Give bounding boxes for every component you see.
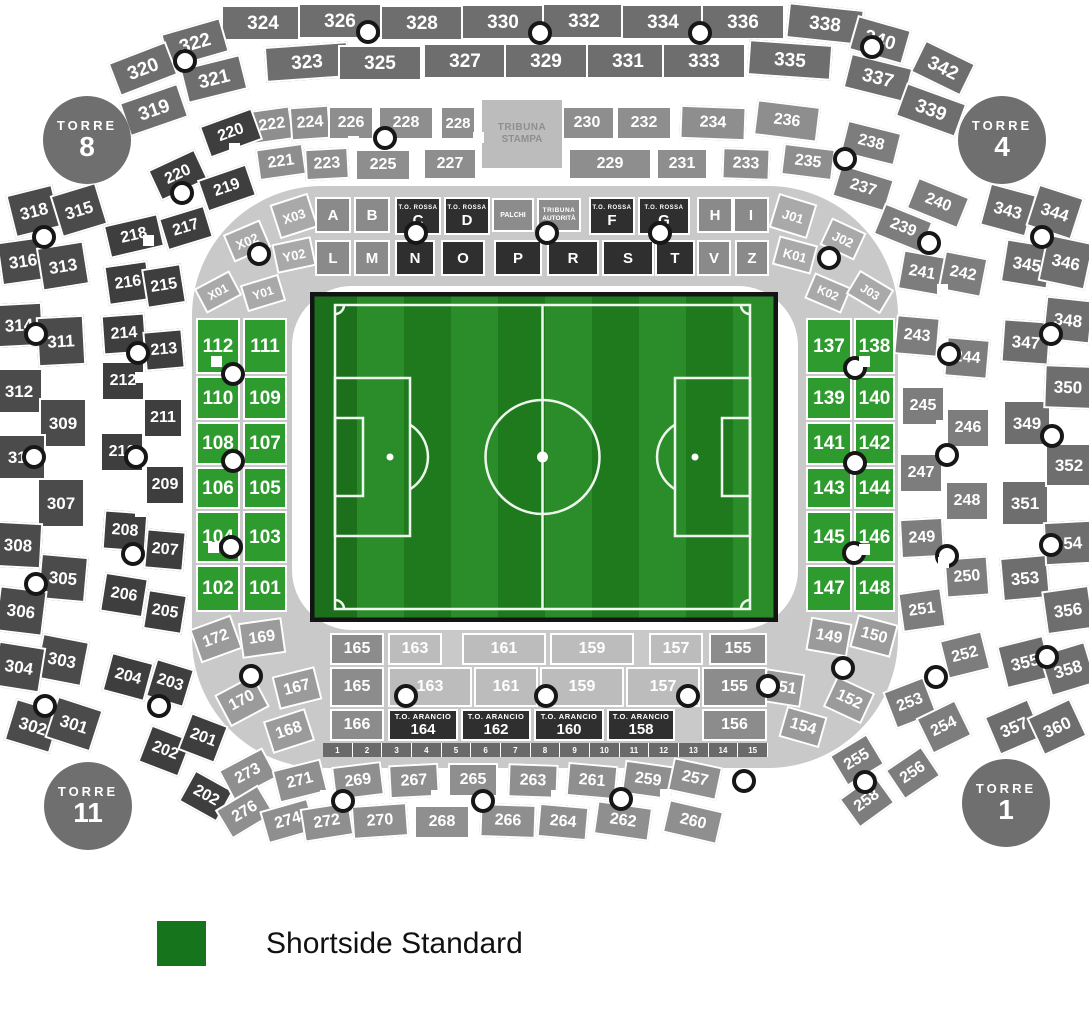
section-165[interactable]: 165 [330,667,384,707]
section-228[interactable]: 228 [440,106,476,140]
row-number-5: 5 [442,743,472,757]
gate-notch [937,284,948,295]
view-marker[interactable] [860,35,884,59]
section-225[interactable]: 225 [355,149,411,181]
section-235[interactable]: 235 [780,143,836,181]
section-169[interactable]: 169 [238,617,287,659]
section-230[interactable]: 230 [559,106,615,140]
gate-notch [936,420,947,431]
view-marker[interactable] [817,246,841,270]
gate-notch [135,372,146,383]
section-327[interactable]: 327 [423,43,507,79]
section-207[interactable]: 207 [143,528,186,571]
section-332[interactable]: 332 [542,3,626,39]
row-number-4: 4 [412,743,442,757]
tower-4: TORRE4 [958,96,1046,184]
section-102[interactable]: 102 [196,565,240,612]
section-229[interactable]: 229 [568,148,652,180]
section-209[interactable]: 209 [145,465,185,505]
section-224[interactable]: 224 [289,105,331,142]
row-number-1: 1 [323,743,353,757]
section-158[interactable]: T.O. ARANCIO158 [607,709,675,741]
section-211[interactable]: 211 [143,398,183,438]
section-111[interactable]: 111 [243,318,287,374]
section-H[interactable]: H [697,197,733,233]
section-155[interactable]: 155 [709,633,767,665]
section-P[interactable]: P [494,240,542,276]
view-marker[interactable] [471,789,495,813]
view-marker[interactable] [648,221,672,245]
tower-1: TORRE1 [962,759,1050,847]
section-312[interactable]: 312 [0,368,43,414]
tower-8: TORRE8 [43,96,131,184]
view-marker[interactable] [917,231,941,255]
section-D[interactable]: T.O. ROSSAD [444,197,490,235]
section-335[interactable]: 335 [747,39,833,81]
section-243[interactable]: 243 [893,314,940,358]
section-143[interactable]: 143 [806,467,852,509]
section-V[interactable]: V [697,240,731,276]
view-marker[interactable] [221,362,245,386]
section-F[interactable]: T.O. ROSSAF [589,197,635,235]
section-161[interactable]: 161 [462,633,546,665]
section-231[interactable]: 231 [656,148,708,180]
view-marker[interactable] [24,572,48,596]
section-227[interactable]: 227 [423,148,477,180]
row-number-12: 12 [649,743,679,757]
section-324[interactable]: 324 [221,5,305,41]
section-260[interactable]: 260 [662,799,724,845]
view-marker[interactable] [732,769,756,793]
section-215[interactable]: 215 [141,263,187,309]
section-B[interactable]: B [354,197,390,233]
row-number-15: 15 [738,743,768,757]
section-A[interactable]: A [315,197,351,233]
section-350[interactable]: 350 [1043,364,1089,410]
section-103[interactable]: 103 [243,511,287,563]
tower-11: TORRE11 [44,762,132,850]
section-331[interactable]: 331 [586,43,670,79]
section-219[interactable]: 219 [197,163,257,212]
section-206[interactable]: 206 [99,572,149,618]
view-marker[interactable] [239,664,263,688]
view-marker[interactable] [1030,225,1054,249]
legend-label: Shortside Standard [266,927,523,961]
row-number-8: 8 [531,743,561,757]
football-pitch [310,292,778,622]
section-N[interactable]: N [395,240,435,276]
gate-notch [859,544,870,555]
gate-notch [211,356,222,367]
section-148[interactable]: 148 [854,565,895,612]
section-161[interactable]: 161 [474,667,538,707]
view-marker[interactable] [404,221,428,245]
view-marker[interactable] [676,684,700,708]
section-333[interactable]: 333 [662,43,746,79]
section-M[interactable]: M [354,240,390,276]
view-marker[interactable] [833,147,857,171]
gate-notch [229,143,240,154]
view-marker[interactable] [22,445,46,469]
row-number-6: 6 [471,743,501,757]
section-232[interactable]: 232 [616,106,672,140]
section-308[interactable]: 308 [0,521,43,569]
section-304[interactable]: 304 [0,641,46,694]
section-STAMPA[interactable]: TRIBUNASTAMPA [480,98,564,170]
section-360[interactable]: 360 [1026,698,1087,756]
section-223[interactable]: 223 [304,147,350,181]
view-marker[interactable] [528,21,552,45]
gate-notch [348,136,359,147]
view-marker[interactable] [121,542,145,566]
gate-notch [135,506,146,517]
gate-notch [143,235,154,246]
section-248[interactable]: 248 [945,481,989,521]
section-165[interactable]: 165 [330,633,384,665]
section-205[interactable]: 205 [142,589,188,635]
section-163[interactable]: 163 [388,633,442,665]
section-264[interactable]: 264 [537,803,590,841]
section-352[interactable]: 352 [1045,443,1089,487]
view-marker[interactable] [126,341,150,365]
section-351[interactable]: 351 [1001,480,1049,526]
section-315[interactable]: 315 [50,182,109,238]
row-number-7: 7 [501,743,531,757]
section-251[interactable]: 251 [897,587,946,633]
view-marker[interactable] [535,221,559,245]
section-233[interactable]: 233 [721,147,770,181]
section-356[interactable]: 356 [1041,585,1089,635]
view-marker[interactable] [609,787,633,811]
section-S[interactable]: S [602,240,654,276]
view-marker[interactable] [373,126,397,150]
legend: Shortside Standard [157,921,523,966]
section-109[interactable]: 109 [243,376,287,420]
section-106[interactable]: 106 [196,467,240,509]
view-marker[interactable] [173,49,197,73]
section-R[interactable]: R [547,240,599,276]
section-221[interactable]: 221 [255,143,307,181]
view-marker[interactable] [688,21,712,45]
section-T[interactable]: T [655,240,695,276]
section-105[interactable]: 105 [243,467,287,509]
section-164[interactable]: T.O. ARANCIO164 [388,709,458,741]
stadium-seating-map: 3243263283303323343363383403423223203213… [0,0,1089,1032]
section-140[interactable]: 140 [854,376,895,420]
section-336[interactable]: 336 [701,4,785,40]
section-329[interactable]: 329 [504,43,588,79]
section-149[interactable]: 149 [805,617,852,658]
view-marker[interactable] [924,665,948,689]
section-147[interactable]: 147 [806,565,852,612]
view-marker[interactable] [170,181,194,205]
view-marker[interactable] [247,242,271,266]
section-159[interactable]: 159 [550,633,634,665]
section-I[interactable]: I [733,197,769,233]
gate-notch [473,132,484,143]
gate-notch [744,132,755,143]
gate-notch [431,790,442,801]
section-O[interactable]: O [441,240,485,276]
view-marker[interactable] [935,443,959,467]
view-marker[interactable] [1039,322,1063,346]
view-marker[interactable] [534,684,558,708]
view-marker[interactable] [1035,645,1059,669]
section-246[interactable]: 246 [946,408,990,448]
row-number-9: 9 [560,743,590,757]
section-166[interactable]: 166 [330,709,384,741]
view-marker[interactable] [1039,533,1063,557]
view-marker[interactable] [124,445,148,469]
gate-notch [859,356,870,367]
section-307[interactable]: 307 [37,478,85,528]
view-marker[interactable] [24,322,48,346]
legend-swatch-shortside-standard [157,921,206,966]
section-157[interactable]: 157 [649,633,703,665]
view-marker[interactable] [394,684,418,708]
row-number-10: 10 [590,743,620,757]
section-160[interactable]: T.O. ARANCIO160 [534,709,604,741]
view-marker[interactable] [356,20,380,44]
gate-notch [320,790,331,801]
section-PALCHI[interactable]: PALCHI [492,198,534,232]
view-marker[interactable] [33,694,57,718]
view-marker[interactable] [1040,424,1064,448]
gate-notch [660,789,671,800]
section-139[interactable]: 139 [806,376,852,420]
view-marker[interactable] [937,342,961,366]
section-101[interactable]: 101 [243,565,287,612]
section-236[interactable]: 236 [753,99,821,143]
view-marker[interactable] [331,789,355,813]
section-234[interactable]: 234 [679,105,746,141]
section-343[interactable]: 343 [979,183,1037,238]
section-268[interactable]: 268 [414,805,470,839]
view-marker[interactable] [221,449,245,473]
view-marker[interactable] [219,535,243,559]
section-309[interactable]: 309 [39,398,87,448]
view-marker[interactable] [147,694,171,718]
gate-notch [208,542,219,553]
section-107[interactable]: 107 [243,422,287,465]
section-156[interactable]: 156 [702,709,767,741]
section-218[interactable]: 218 [103,213,165,259]
section-328[interactable]: 328 [380,5,464,41]
row-number-13: 13 [679,743,709,757]
row-number-11: 11 [620,743,650,757]
section-270[interactable]: 270 [351,802,409,840]
section-Z[interactable]: Z [735,240,769,276]
view-marker[interactable] [756,674,780,698]
row-number-3: 3 [382,743,412,757]
view-marker[interactable] [32,225,56,249]
view-marker[interactable] [831,656,855,680]
view-marker[interactable] [853,770,877,794]
section-L[interactable]: L [315,240,351,276]
gate-notch [938,557,949,568]
gate-notch [551,790,562,801]
row-number-2: 2 [353,743,383,757]
section-162[interactable]: T.O. ARANCIO162 [461,709,531,741]
section-217[interactable]: 217 [158,205,214,252]
section-226[interactable]: 226 [328,106,374,140]
row-number-14: 14 [709,743,739,757]
view-marker[interactable] [843,451,867,475]
section-325[interactable]: 325 [338,45,422,81]
